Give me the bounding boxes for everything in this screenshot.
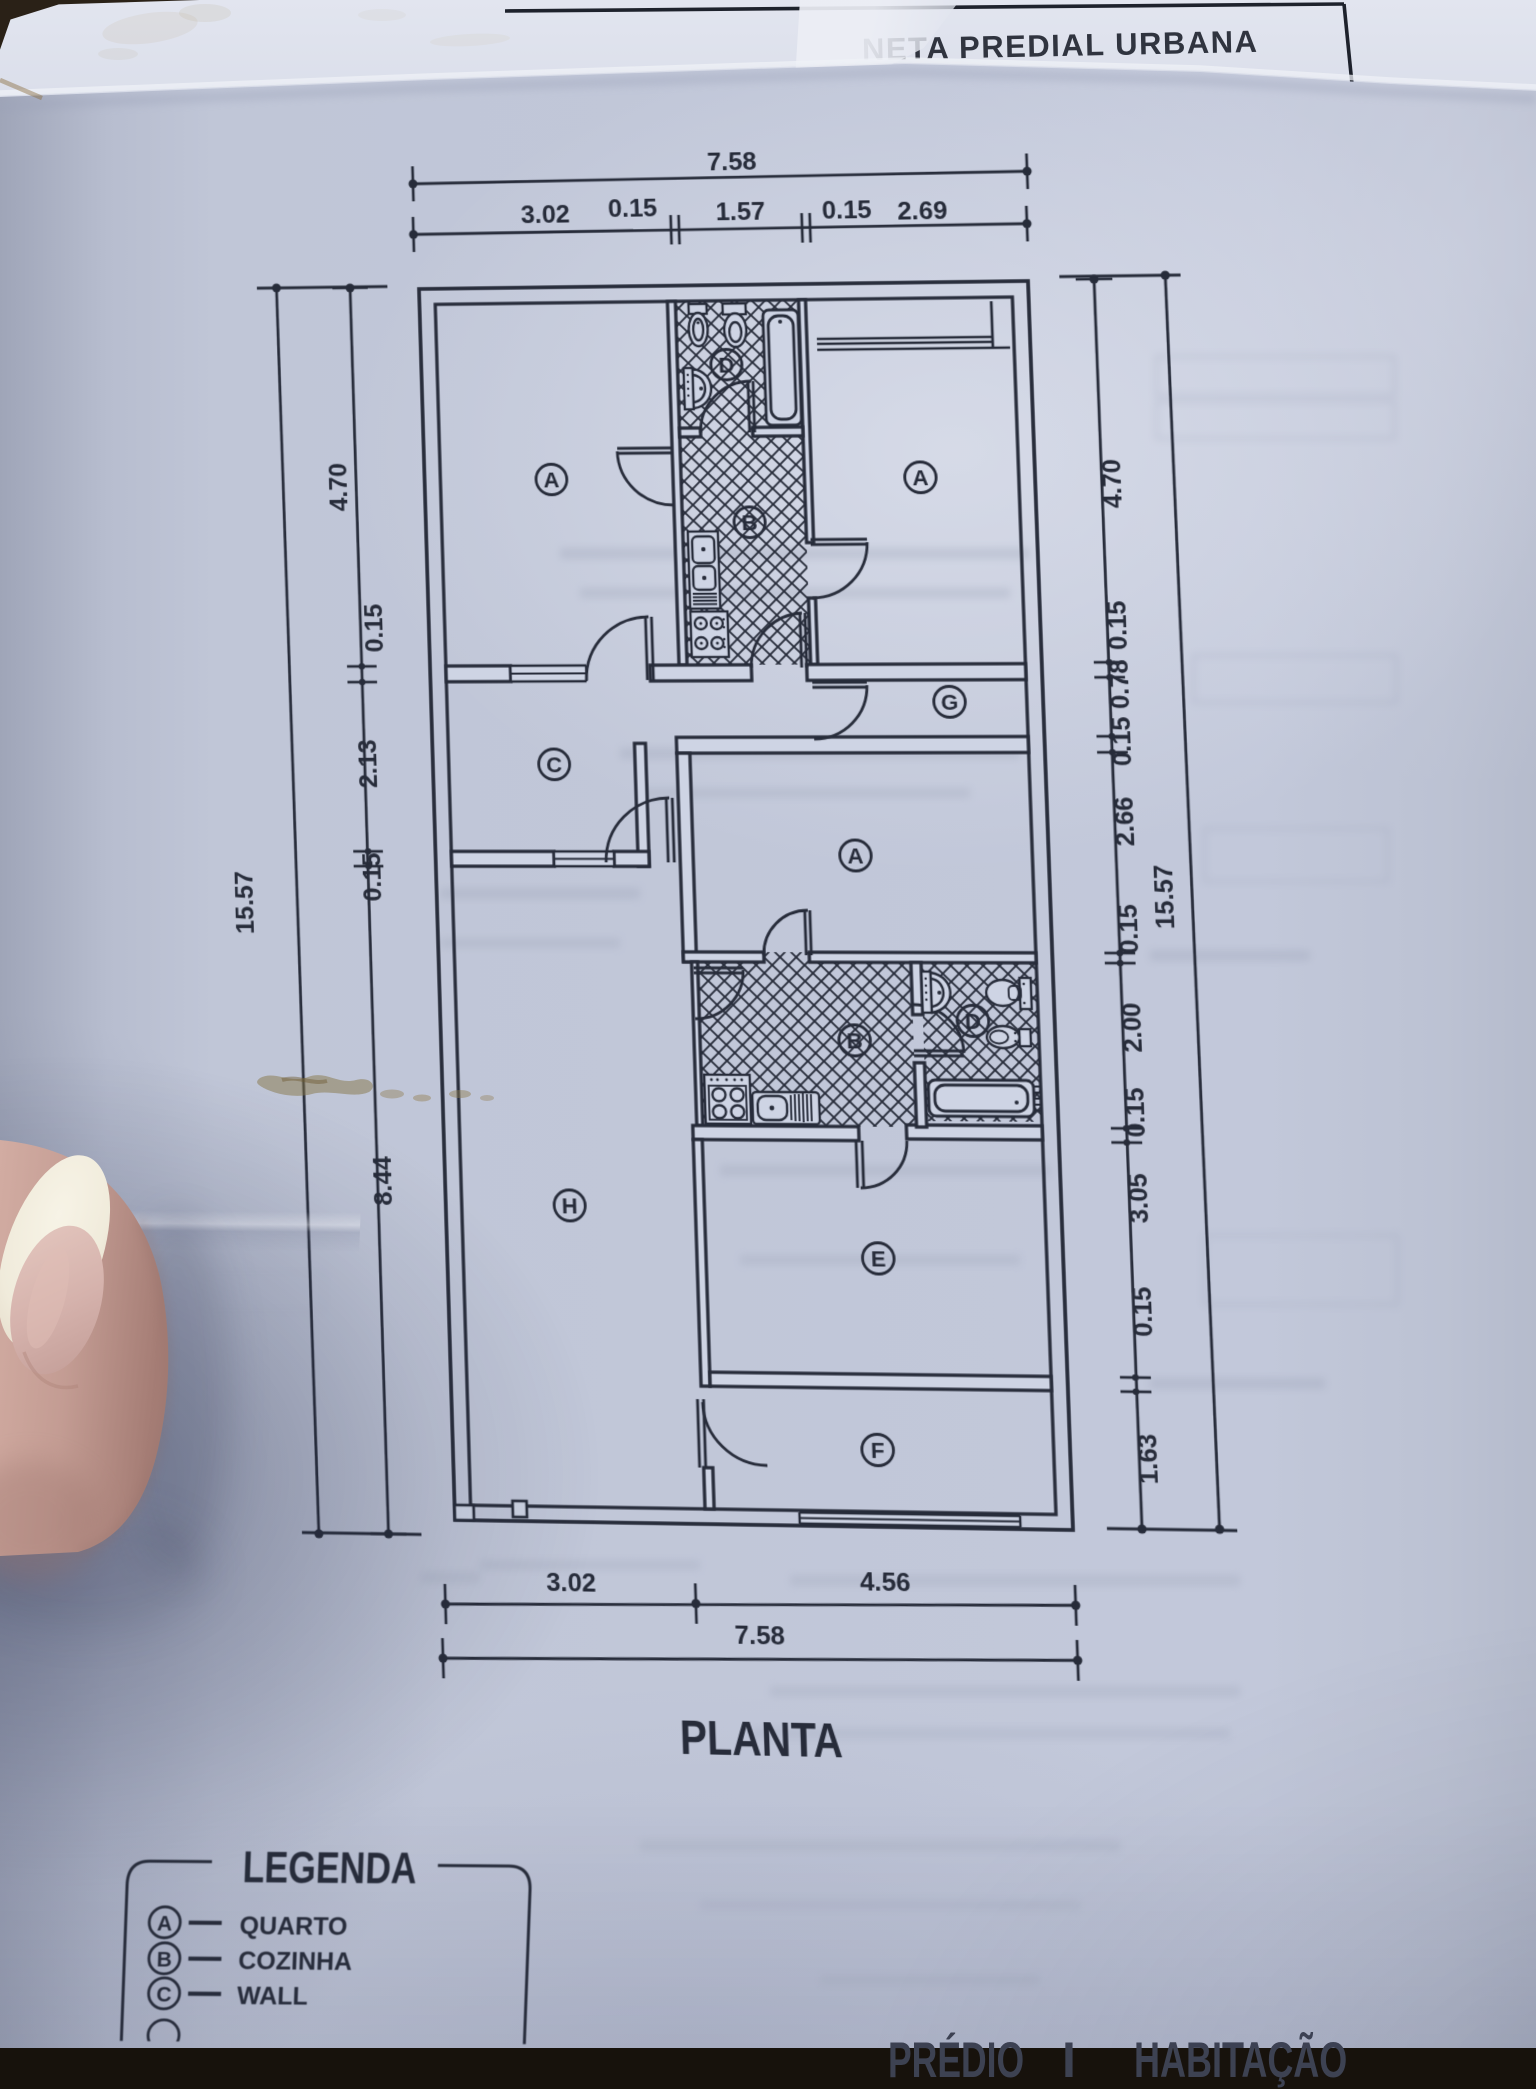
- svg-text:C: C: [156, 1983, 172, 2006]
- svg-text:4.70: 4.70: [1098, 459, 1128, 509]
- svg-text:E: E: [870, 1248, 886, 1272]
- svg-text:2.69: 2.69: [897, 197, 948, 225]
- svg-text:0.78: 0.78: [1105, 659, 1136, 709]
- svg-text:0.15: 0.15: [821, 197, 872, 225]
- svg-text:0.15: 0.15: [1107, 716, 1138, 766]
- svg-text:LEGENDA: LEGENDA: [242, 1843, 418, 1893]
- svg-text:WALL: WALL: [237, 1982, 309, 2011]
- svg-text:F: F: [870, 1439, 885, 1463]
- svg-text:0.15: 0.15: [1114, 904, 1145, 954]
- svg-text:2.00: 2.00: [1118, 1003, 1149, 1053]
- svg-text:A: A: [847, 845, 864, 869]
- svg-text:A: A: [157, 1912, 173, 1935]
- svg-text:15.57: 15.57: [1150, 865, 1181, 929]
- svg-text:0.15: 0.15: [1103, 600, 1134, 650]
- svg-text:B: B: [846, 1030, 863, 1054]
- svg-text:A: A: [912, 467, 929, 491]
- svg-text:G: G: [941, 691, 959, 715]
- svg-text:2.66: 2.66: [1110, 797, 1141, 847]
- svg-text:1.63: 1.63: [1134, 1434, 1165, 1485]
- svg-text:3.05: 3.05: [1124, 1173, 1155, 1223]
- svg-text:4.56: 4.56: [859, 1568, 911, 1597]
- svg-text:D: D: [964, 1010, 981, 1034]
- svg-text:B: B: [156, 1948, 172, 1971]
- svg-text:0.15: 0.15: [1121, 1087, 1152, 1137]
- svg-text:0.15: 0.15: [1128, 1286, 1159, 1337]
- svg-text:COZINHA: COZINHA: [238, 1947, 353, 1976]
- svg-text:QUARTO: QUARTO: [239, 1912, 348, 1941]
- svg-text:7.58: 7.58: [734, 1622, 785, 1651]
